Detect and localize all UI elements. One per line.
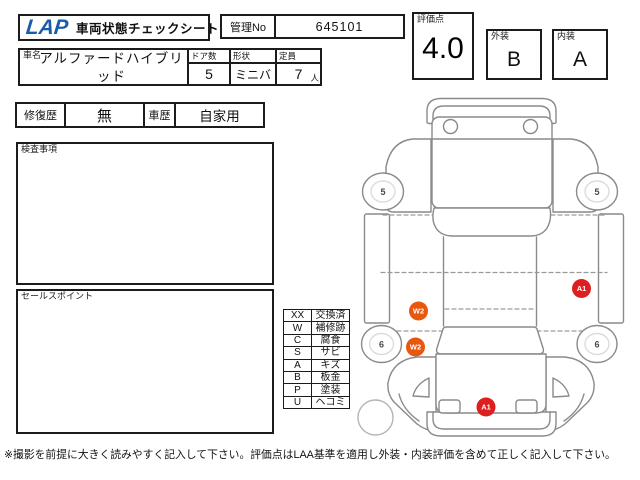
exterior-label: 外装 <box>491 32 509 42</box>
legend-row: B板金 <box>284 371 350 383</box>
repair-history-value: 無 <box>64 104 143 126</box>
lap-logo: LAP <box>25 16 70 40</box>
interior-label: 内装 <box>557 32 575 42</box>
damage-marker-code: A1 <box>481 403 491 412</box>
sales-point-box: セールスポイント <box>16 289 274 434</box>
repair-history-label: 修復歴 <box>17 104 64 126</box>
legend-code: B <box>284 371 312 383</box>
legend-label: 交換済 <box>312 310 350 322</box>
car-history-value: 自家用 <box>174 104 263 126</box>
interior-grade-box: 内装 A <box>552 29 608 80</box>
legend-label: 塗装 <box>312 384 350 396</box>
shape-cell: 形状 ミニバ <box>229 50 275 84</box>
legend-label: 補修跡 <box>312 322 350 334</box>
vehicle-name-cell: 車名 アルファードハイブリッド <box>20 50 187 84</box>
doors-cell: ドア数 5 <box>187 50 229 84</box>
legend-label: ヘコミ <box>312 396 350 408</box>
damage-marker-code: A1 <box>577 284 587 293</box>
vehicle-check-sheet: { "header": { "logo": "LAP", "title": "車… <box>0 0 640 480</box>
legend-row: Aキズ <box>284 359 350 371</box>
vehicle-info-row: 車名 アルファードハイブリッド ドア数 5 形状 ミニバ 定員 7 人 <box>18 48 322 86</box>
shape-value: ミニバ <box>231 64 275 84</box>
damage-marker-code: W2 <box>410 343 421 352</box>
vehicle-name-value: アルファードハイブリッド <box>20 48 187 85</box>
manage-no-value: 645101 <box>276 16 403 37</box>
history-row: 修復歴 無 車歴 自家用 <box>15 102 265 128</box>
legend-row: XX交換済 <box>284 310 350 322</box>
score-box: 評価点 4.0 <box>412 12 474 80</box>
front-bumper <box>427 412 556 436</box>
legend-row: P塗装 <box>284 384 350 396</box>
front-left-lamp <box>439 400 460 413</box>
manage-no-label: 管理No <box>222 16 276 37</box>
capacity-unit: 人 <box>310 72 319 84</box>
score-value: 4.0 <box>414 34 472 64</box>
legend-label: キズ <box>312 359 350 371</box>
exterior-grade-box: 外装 B <box>486 29 542 80</box>
left-side-sill <box>365 214 390 323</box>
front-right-lamp <box>516 400 537 413</box>
legend-row: W補修跡 <box>284 322 350 334</box>
legend-code: A <box>284 359 312 371</box>
legend-row: C腐食 <box>284 334 350 346</box>
vehicle-name-label: 車名 <box>23 51 41 61</box>
legend-code: U <box>284 396 312 408</box>
inspection-items-box: 検査事項 <box>16 142 274 285</box>
legend-code: W <box>284 322 312 334</box>
legend-code: S <box>284 347 312 359</box>
doors-label: ドア数 <box>189 50 229 64</box>
legend-code: C <box>284 334 312 346</box>
legend-label: サビ <box>312 347 350 359</box>
wheel-mark: 5 <box>380 187 385 197</box>
rear-glass <box>433 208 551 236</box>
score-label: 評価点 <box>417 15 444 25</box>
right-side-sill <box>599 214 624 323</box>
exterior-value: B <box>488 49 540 70</box>
legend-row: Sサビ <box>284 347 350 359</box>
legend-label: 板金 <box>312 371 350 383</box>
wheel-mark: 6 <box>379 340 384 350</box>
sales-point-label: セールスポイント <box>21 292 93 302</box>
damage-code-legend: XX交換済 W補修跡 C腐食 Sサビ Aキズ B板金 P塗装 Uヘコミ <box>283 309 350 409</box>
capacity-cell: 定員 7 人 <box>275 50 320 84</box>
legend-row: Uヘコミ <box>284 396 350 408</box>
legend-code: P <box>284 384 312 396</box>
manage-no-box: 管理No 645101 <box>220 14 405 39</box>
shape-label: 形状 <box>231 50 275 64</box>
wheel-mark: 6 <box>594 340 599 350</box>
sheet-title: 車両状態チェックシート <box>76 18 219 37</box>
wheel-mark: 5 <box>594 187 599 197</box>
sheet-header-box: LAP 車両状態チェックシート <box>18 14 210 41</box>
inspection-items-label: 検査事項 <box>21 145 57 155</box>
car-diagram: 5 5 6 6 W2 W2 A1 A1 <box>355 88 640 445</box>
legend-label: 腐食 <box>312 334 350 346</box>
car-history-label: 車歴 <box>143 104 174 126</box>
windshield <box>437 327 544 354</box>
footer-note: ※撮影を前提に大きく読みやすく記入して下さい。評価点はLAA基準を適用し外装・内… <box>4 446 638 462</box>
capacity-label: 定員 <box>277 50 320 64</box>
spare-wheel-circle <box>358 400 393 435</box>
interior-value: A <box>554 49 606 70</box>
doors-value: 5 <box>189 64 229 84</box>
damage-marker-code: W2 <box>413 307 424 316</box>
tailgate-panel <box>432 117 552 208</box>
legend-code: XX <box>284 310 312 322</box>
